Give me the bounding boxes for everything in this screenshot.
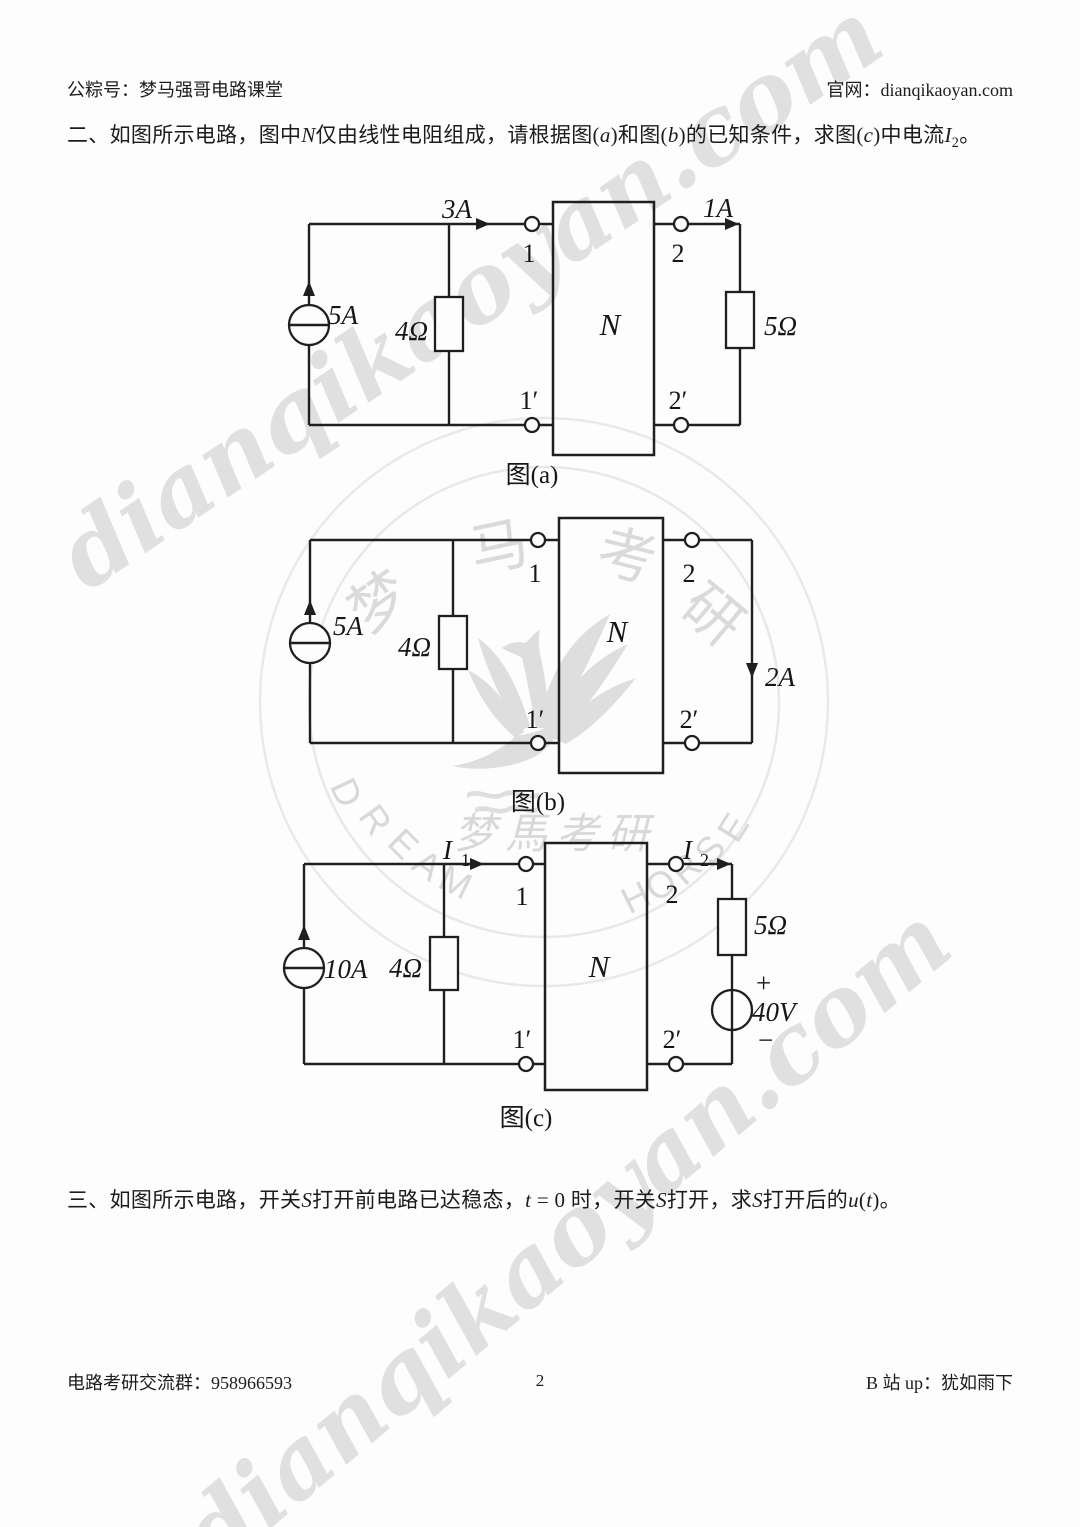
circuit-diagram-b: 5A 4Ω 2A 1 2 1′ 2′ N 图(b)	[265, 510, 825, 820]
terminal-2-node	[685, 533, 699, 547]
source-current-label: 5A	[328, 300, 359, 330]
source-current-label: 5A	[333, 611, 364, 641]
circuit-diagram-a: 5A 4Ω 3A 1A 5Ω 1 2 1′ 2′ N 图(a)	[260, 185, 820, 495]
terminal-1-node	[525, 217, 539, 231]
terminal-2-node	[669, 857, 683, 871]
figure-a-caption: 图(a)	[506, 462, 559, 489]
page-header: 公粽号：梦马强哥电路课堂 官网：dianqikaoyan.com	[67, 76, 1013, 102]
terminal-2p-label: 2′	[680, 705, 699, 734]
terminal-1p-label: 1′	[520, 386, 539, 415]
terminal-1-node	[531, 533, 545, 547]
terminal-2-label: 2	[666, 880, 679, 909]
voltage-source-label: 40V	[752, 997, 799, 1027]
voltage-source-symbol	[712, 990, 752, 1030]
resistor-4ohm	[435, 297, 463, 351]
terminal-1-node	[519, 857, 533, 871]
plus-sign: +	[756, 968, 771, 998]
figure-c-caption: 图(c)	[500, 1105, 553, 1132]
current-arrow-right	[476, 218, 490, 230]
shunt-resistor-label: 4Ω	[398, 632, 431, 662]
shunt-resistor-label: 4Ω	[389, 953, 422, 983]
terminal-1-label: 1	[523, 239, 536, 268]
footer-qq-group: 电路考研交流群：958966593	[67, 1369, 292, 1395]
terminal-1p-node	[531, 736, 545, 750]
current-arrow-down	[746, 663, 758, 678]
header-account-name: 公粽号：梦马强哥电路课堂	[67, 76, 283, 102]
network-label: N	[588, 949, 612, 984]
terminal-1p-label: 1′	[513, 1025, 532, 1054]
current-direction-arrow-up	[303, 281, 315, 296]
terminal-2p-label: 2′	[663, 1025, 682, 1054]
current-source-symbol	[284, 925, 324, 988]
current-arrow-right	[470, 858, 484, 870]
footer-bilibili-up: B 站 up：犹如雨下	[866, 1369, 1013, 1395]
terminal-2-node	[674, 217, 688, 231]
terminal-2-label: 2	[683, 559, 696, 588]
terminal-1-label: 1	[529, 559, 542, 588]
shunt-resistor-label: 4Ω	[395, 316, 428, 346]
resistor-5ohm	[718, 899, 746, 955]
load-resistor-label: 5Ω	[764, 311, 797, 341]
header-website: 官网：dianqikaoyan.com	[827, 76, 1013, 102]
current-source-symbol	[290, 600, 330, 663]
terminal-2-label: 2	[672, 239, 685, 268]
question-3-text: 三、如图所示电路，开关S打开前电路已达稳态，t = 0 时，开关S打开，求S打开…	[67, 1184, 1017, 1214]
network-label: N	[599, 307, 623, 342]
terminal-1p-node	[519, 1057, 533, 1071]
minus-sign: −	[758, 1025, 773, 1055]
load-resistor-label: 5Ω	[754, 910, 787, 940]
terminal-2p-label: 2′	[669, 386, 688, 415]
terminal-2p-node	[669, 1057, 683, 1071]
current-direction-arrow-up	[304, 600, 316, 615]
figure-b-caption: 图(b)	[511, 789, 565, 816]
terminal-1p-node	[525, 418, 539, 432]
current-arrow-right	[717, 858, 731, 870]
output-current-label: 1A	[703, 193, 734, 223]
resistor-4ohm	[430, 937, 458, 990]
source-current-label: 10A	[324, 954, 368, 984]
resistor-4ohm	[439, 616, 467, 669]
terminal-2p-node	[685, 736, 699, 750]
output-current-label: 2A	[765, 662, 796, 692]
question-2-text: 二、如图所示电路，图中N仅由线性电阻组成，请根据图(a)和图(b)的已知条件，求…	[67, 119, 1017, 152]
resistor-5ohm	[726, 292, 754, 348]
terminal-1-label: 1	[516, 882, 529, 911]
terminal-1p-label: 1′	[526, 705, 545, 734]
current-direction-arrow-up	[298, 925, 310, 940]
circuit-diagram-c: 10A 4Ω I 1 I 2 5Ω + 40V − 1 2 1′ 2′ N 图(…	[260, 835, 840, 1135]
page-number: 2	[536, 1371, 545, 1391]
network-label: N	[606, 614, 630, 649]
current-source-symbol	[289, 281, 329, 345]
input-current-label: 3A	[441, 194, 473, 224]
terminal-2p-node	[674, 418, 688, 432]
worksheet-page: dianqikaoyan.com dianqikaoyan.com 梦 马 考 …	[0, 0, 1080, 1527]
